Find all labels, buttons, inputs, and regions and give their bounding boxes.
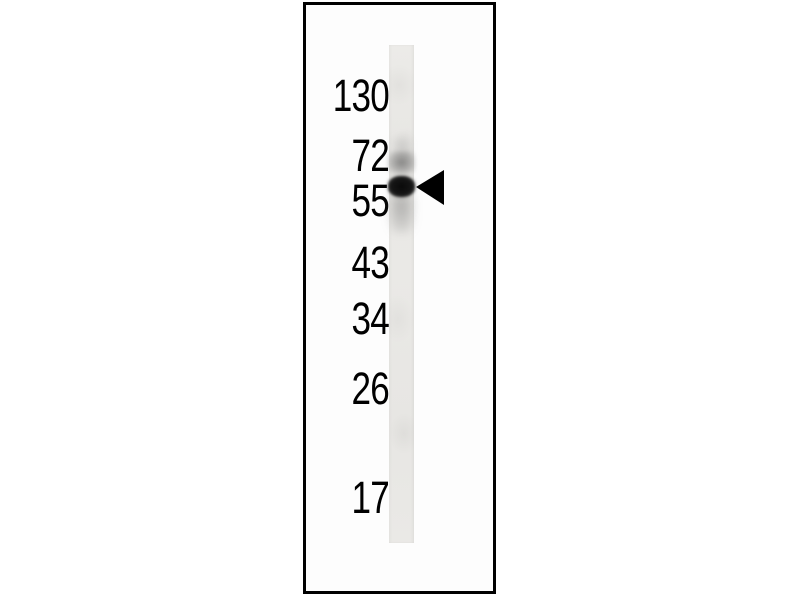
gel-lane	[389, 45, 414, 543]
band-strong-57kda	[388, 176, 415, 197]
marker-label-26: 26	[319, 366, 389, 411]
marker-label-17: 17	[319, 475, 389, 520]
marker-label-34: 34	[319, 296, 389, 341]
marker-label-72: 72	[319, 133, 389, 178]
marker-label-43: 43	[319, 240, 389, 285]
marker-label-130: 130	[319, 73, 389, 118]
blot-panel: 130 72 55 43 34 26 17	[303, 2, 496, 594]
marker-label-55: 55	[319, 178, 389, 223]
band-halo	[388, 195, 415, 233]
arrowhead-icon	[416, 170, 444, 205]
band-faint-72kda	[388, 151, 415, 174]
blot-figure: 130 72 55 43 34 26 17	[0, 0, 800, 600]
